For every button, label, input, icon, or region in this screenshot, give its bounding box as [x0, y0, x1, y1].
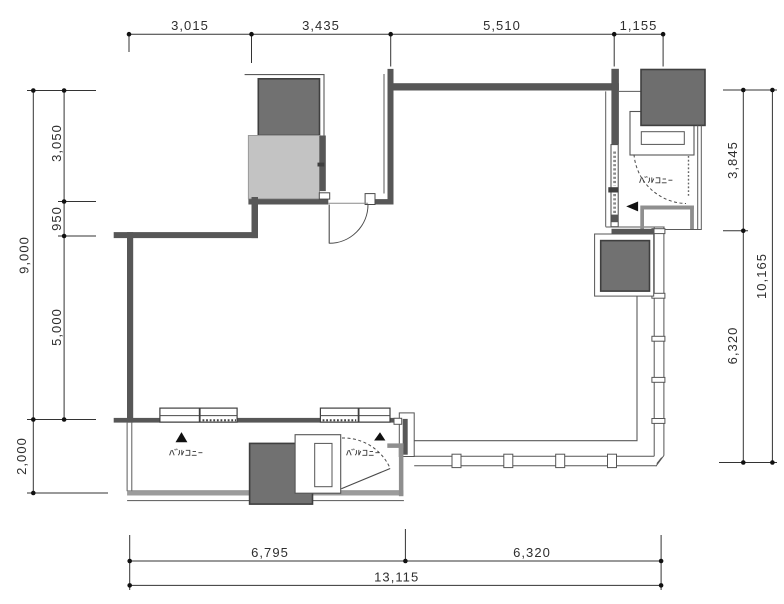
svg-text:6,320: 6,320	[513, 545, 551, 560]
svg-text:3,845: 3,845	[725, 141, 740, 179]
svg-text:3,015: 3,015	[171, 18, 209, 33]
svg-text:13,115: 13,115	[374, 570, 419, 585]
svg-text:3,050: 3,050	[49, 124, 64, 162]
svg-text:6,795: 6,795	[251, 545, 289, 560]
svg-text:2,000: 2,000	[14, 437, 29, 475]
svg-text:950: 950	[49, 206, 64, 231]
svg-text:5,510: 5,510	[483, 18, 521, 33]
svg-text:6,320: 6,320	[725, 327, 740, 365]
svg-text:1,155: 1,155	[620, 18, 658, 33]
svg-text:3,435: 3,435	[302, 18, 340, 33]
svg-text:9,000: 9,000	[17, 236, 32, 274]
svg-text:10,165: 10,165	[754, 253, 769, 299]
svg-text:5,000: 5,000	[49, 308, 64, 346]
